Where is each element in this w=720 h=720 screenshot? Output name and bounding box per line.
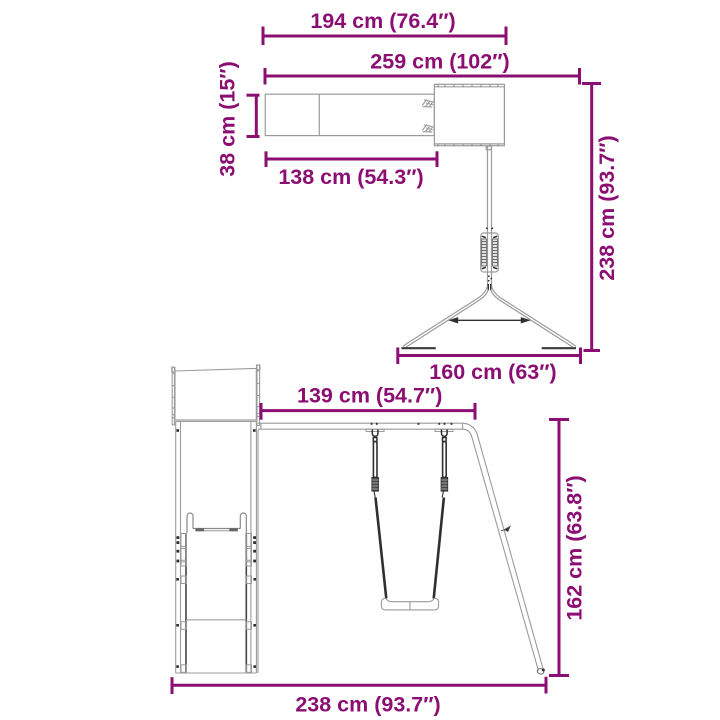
svg-text:238 cm (93.7″): 238 cm (93.7″) (295, 693, 440, 717)
svg-text:139 cm (54.7″): 139 cm (54.7″) (297, 384, 442, 408)
svg-text:160 cm (63″): 160 cm (63″) (429, 360, 556, 384)
svg-text:162 cm (63.8″): 162 cm (63.8″) (563, 475, 587, 620)
svg-text:259 cm (102″): 259 cm (102″) (370, 50, 509, 74)
svg-text:38 cm (15″): 38 cm (15″) (216, 61, 240, 176)
svg-text:138 cm (54.3″): 138 cm (54.3″) (278, 165, 423, 189)
svg-text:238 cm (93.7″): 238 cm (93.7″) (595, 135, 619, 280)
svg-text:194 cm (76.4″): 194 cm (76.4″) (310, 9, 455, 33)
